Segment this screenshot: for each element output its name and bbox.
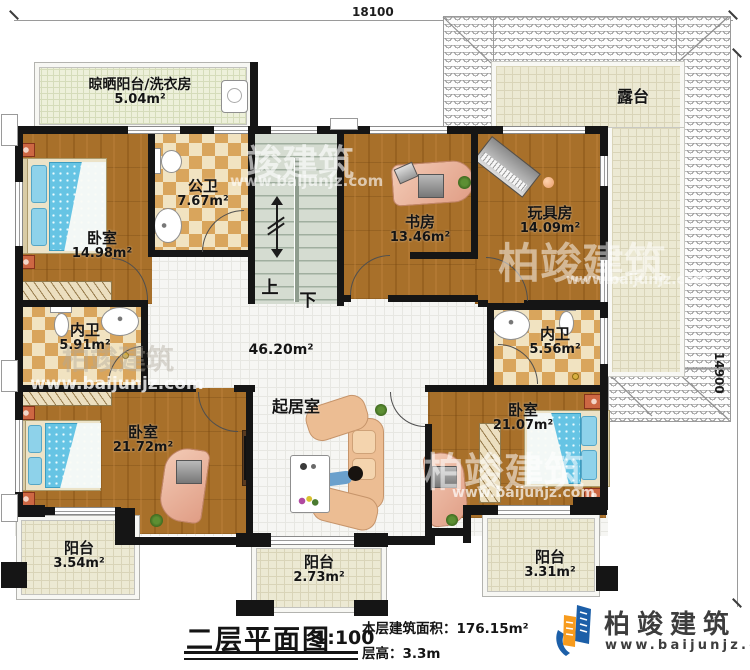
room-name: 阳台 [512, 549, 588, 566]
room-area: 46.20m² [236, 342, 326, 358]
room-area: 3.31m² [512, 566, 588, 581]
brand-url: www.baijunjz.com [605, 638, 750, 653]
balcony-pillar [1, 562, 27, 588]
window [128, 126, 180, 134]
bed-pillow [28, 457, 42, 485]
room-label-balcony-center: 阳台 2.73m² [282, 554, 356, 586]
potted-plant [458, 176, 471, 189]
room-label-bedroom-left: 卧室 14.98m² [60, 230, 144, 262]
wall [425, 424, 432, 536]
ball-toy [543, 177, 554, 188]
toilet-tank [50, 306, 72, 313]
bedroom-bl-monitor [176, 460, 202, 484]
room-label-study: 书房 13.46m² [375, 214, 465, 246]
balcony-pillar [354, 533, 388, 547]
right-dimension-line [737, 55, 738, 607]
wall [487, 303, 607, 310]
balcony-door [55, 507, 115, 515]
balcony-pillar [236, 533, 271, 547]
room-name: 内卫 [520, 326, 590, 343]
room-label-public-bath: 公卫 7.67m² [170, 178, 236, 210]
pier-box [330, 118, 358, 130]
bed-pillow [581, 450, 597, 480]
bed-pillow [31, 165, 47, 203]
potted-plant [446, 514, 458, 526]
bed-pillow [581, 416, 597, 446]
window [15, 420, 23, 492]
room-area: 5.91m² [50, 339, 120, 354]
terrace-door [600, 318, 608, 364]
wall [573, 497, 607, 515]
room-area: 13.46m² [375, 231, 465, 246]
roof-tiles-left [443, 16, 494, 132]
stairs-rail [294, 158, 299, 302]
brand-logo-icon [554, 602, 598, 658]
room-area: 21.07m² [480, 419, 566, 434]
pier-box [1, 360, 18, 392]
room-label-bath-right: 内卫 5.56m² [520, 326, 590, 358]
brand-name: 柏竣建筑 [604, 604, 736, 641]
window [271, 126, 317, 134]
room-name: 卧室 [480, 402, 566, 419]
room-area: 7.67m² [170, 195, 236, 210]
room-name: 玩具房 [500, 205, 600, 222]
room-area: 14.98m² [60, 247, 144, 262]
room-name: 阳台 [282, 554, 356, 571]
room-area: 2.73m² [282, 571, 356, 586]
wall [15, 385, 196, 392]
wardrobe-bedroom-bl [20, 390, 112, 406]
room-label-laundry: 晾晒阳台/洗衣房 5.04m² [70, 77, 210, 108]
brand-logo: 柏竣建筑 www.baijunjz.com [554, 600, 746, 662]
room-label-bedroom-bl: 卧室 21.72m² [100, 424, 186, 456]
room-name-laundry: 晾晒阳台/洗衣房 [70, 77, 210, 93]
wall [471, 126, 478, 258]
room-name: 公卫 [170, 178, 236, 195]
wall [410, 252, 478, 259]
bed-pillow [31, 208, 47, 246]
person-head [348, 466, 363, 481]
sofa-cushion [352, 430, 376, 454]
title-underline [184, 651, 358, 654]
washing-machine-door [227, 88, 242, 103]
window [370, 126, 447, 134]
stairs-arrow-down [271, 249, 283, 258]
living-area-label: 46.20m² [236, 342, 326, 358]
right-dimension-label: 14900 [712, 352, 726, 394]
room-name: 起居室 [256, 398, 336, 416]
balcony-pillar [596, 566, 618, 591]
toilet-bowl [161, 150, 182, 173]
room-label-bath-left: 内卫 5.91m² [50, 322, 120, 354]
terrace-door [600, 260, 608, 302]
room-area: 21.72m² [100, 441, 186, 456]
wall [341, 295, 351, 302]
room-name: 卧室 [60, 230, 144, 247]
balcony-door [498, 505, 570, 515]
stairs-down-label: 下 [296, 292, 320, 312]
potted-plant [150, 514, 163, 527]
room-area: 14.09m² [500, 222, 600, 237]
terrace-floor-lower [608, 128, 684, 376]
wall [148, 126, 155, 257]
bedroom-br-monitor [432, 466, 457, 488]
bed-pillow [28, 425, 42, 453]
room-name: 阳台 [40, 540, 118, 557]
floor-height-note: 层高：3.3m [362, 642, 440, 662]
room-label-bedroom-br: 卧室 21.07m² [480, 402, 566, 434]
room-name: 内卫 [50, 322, 120, 339]
floor-drain [572, 373, 579, 380]
wall [388, 295, 478, 302]
wall [15, 300, 148, 307]
wall [246, 385, 253, 545]
room-area: 5.56m² [520, 343, 590, 358]
table-flowers [296, 494, 320, 508]
room-name: 卧室 [100, 424, 186, 441]
room-label-balcony-left: 阳台 3.54m² [40, 540, 118, 572]
window [15, 182, 23, 246]
window [214, 126, 248, 134]
window [503, 126, 585, 134]
wall [115, 537, 253, 545]
room-area: 3.54m² [40, 557, 118, 572]
room-label-balcony-right: 阳台 3.31m² [512, 549, 588, 581]
study-monitor [418, 174, 444, 198]
wardrobe-bedroom-br [479, 423, 501, 503]
dim-tick [9, 10, 19, 20]
floor-area-note: 本层建筑面积：176.15m² [362, 617, 529, 637]
stairs-arrow-up [271, 196, 283, 205]
window [600, 156, 608, 186]
wall [337, 126, 344, 306]
wardrobe-bedroom-left [20, 281, 112, 302]
wall [425, 385, 608, 392]
room-name-terrace: 露台 [598, 88, 668, 106]
top-dimension-label: 18100 [352, 5, 394, 19]
wall [248, 126, 255, 304]
wall [487, 303, 494, 392]
sink [154, 208, 182, 243]
table-remote [311, 464, 316, 469]
title-underline [184, 658, 358, 660]
room-label-terrace: 露台 [598, 88, 668, 106]
pier-box [1, 114, 18, 146]
stairs-up-label: 上 [258, 279, 282, 299]
floor-plan-canvas: 18100 14900 露台 晾晒阳台/洗衣房 5.04m² 上 下 [0, 0, 750, 670]
room-area-laundry: 5.04m² [70, 93, 210, 108]
room-label-living: 起居室 [256, 398, 336, 416]
balcony-pillar [236, 600, 274, 616]
pier-box [1, 494, 18, 522]
table-remote [300, 463, 307, 470]
potted-plant [375, 404, 387, 416]
room-name: 书房 [375, 214, 465, 231]
room-label-toy-room: 玩具房 14.09m² [500, 205, 600, 237]
wall [250, 62, 258, 128]
balcony-pillar [354, 600, 388, 616]
